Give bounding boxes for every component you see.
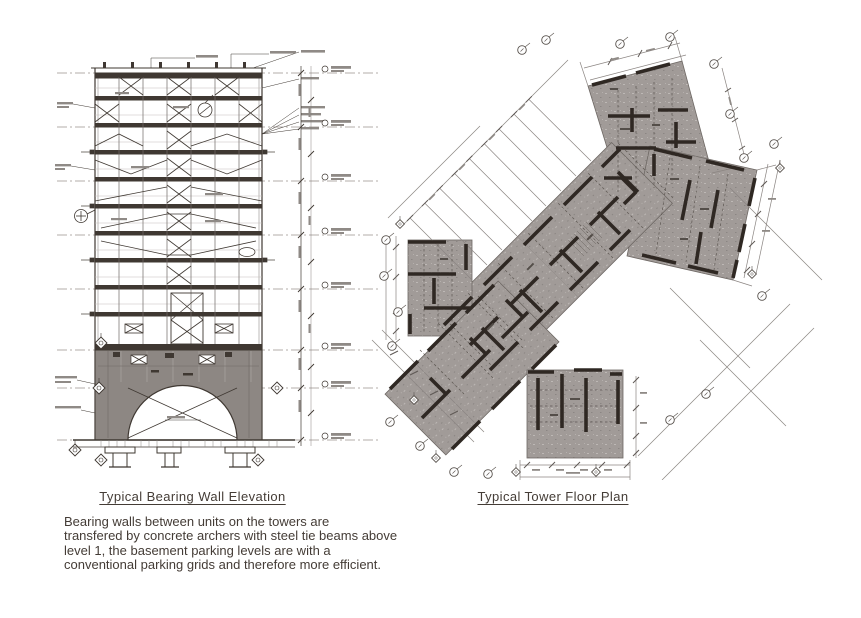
elevation-level-labels [322, 66, 351, 439]
page: Typical Bearing Wall Elevation Typical T… [0, 0, 861, 618]
tower-floor-plan-drawing [370, 28, 861, 480]
elevation-figure-title: Typical Bearing Wall Elevation [60, 489, 325, 504]
caption-text: Bearing walls between units on the tower… [64, 515, 464, 572]
figure-tower-floor-plan [370, 28, 861, 480]
transfer-wall-and-arch [95, 350, 262, 440]
bearing-wall-elevation-drawing [55, 48, 385, 480]
figure-bearing-wall-elevation [55, 48, 385, 480]
ground-and-footings [73, 440, 295, 467]
elevation-dimension-strings [298, 66, 314, 446]
floor-plan-figure-title: Typical Tower Floor Plan [423, 489, 683, 504]
